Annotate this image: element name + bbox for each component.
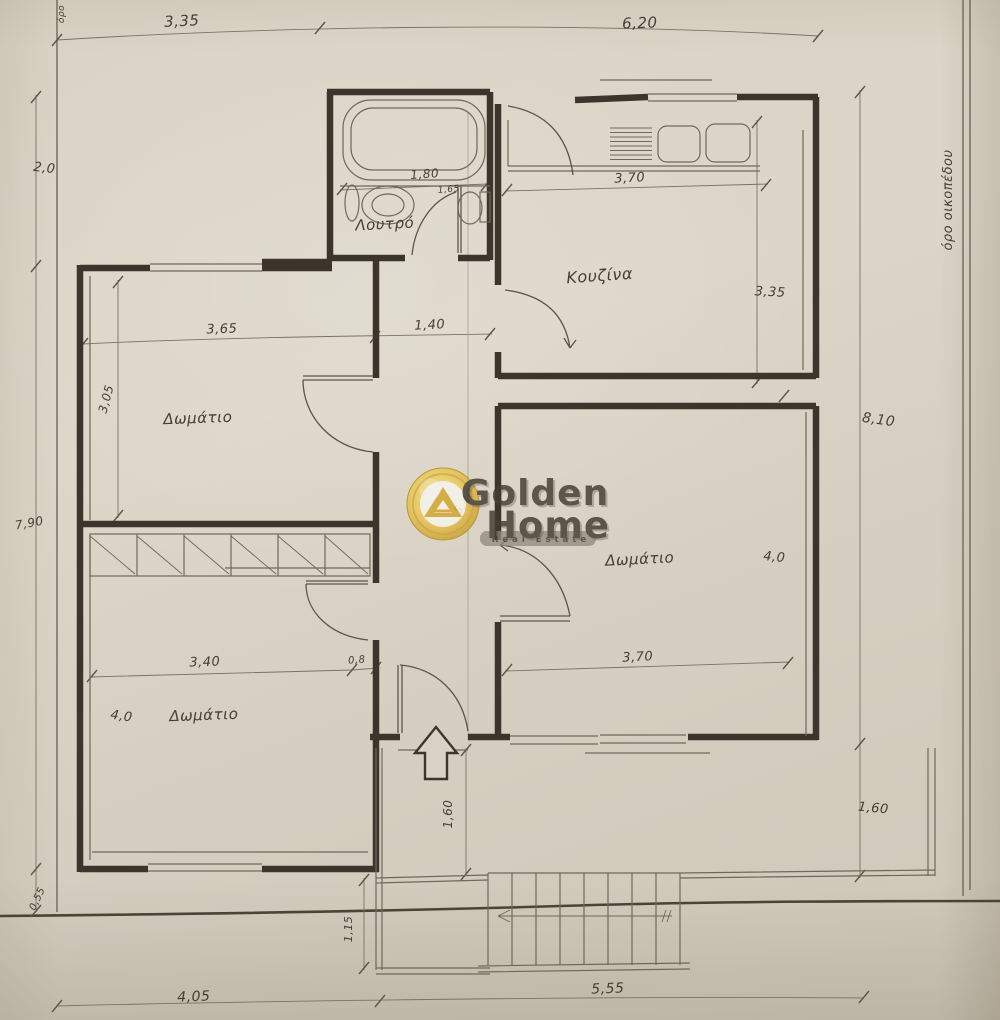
dim-line-bottomroom-width (90, 668, 378, 677)
dim-hall-width: 1,40 (414, 317, 446, 334)
kitchen-drainboard (610, 128, 652, 160)
washbasin-inner (372, 194, 404, 216)
stair-direction-line (498, 910, 672, 922)
dim-bath-door: 1,65 (437, 184, 460, 196)
terrace-edge (376, 748, 935, 883)
dim-bottom-right: 5,55 (591, 980, 625, 997)
closet-outline (90, 534, 370, 576)
dim-left-upper: 2,0 (33, 160, 57, 177)
dim-kitchen-width: 3,70 (614, 170, 646, 187)
dim-right-room-depth: 4,0 (763, 549, 786, 566)
room-label-left: Δωμάτιο (162, 408, 233, 428)
dim-left-main: 7,90 (14, 514, 45, 533)
stair-treads (488, 873, 680, 965)
dim-right-total: 8,10 (861, 410, 896, 430)
leftroom-door (303, 376, 373, 452)
logo-banner-text: Real Estate (492, 535, 590, 545)
stair-baseline (478, 963, 690, 972)
street-line (0, 901, 1000, 916)
closet (90, 534, 370, 576)
dim-bath-width: 1,80 (410, 166, 440, 182)
porch-edge (376, 748, 490, 974)
bathtub-inner (351, 108, 477, 170)
kitchen-back-door (508, 106, 573, 175)
dim-left-bottom: 0,55 (28, 886, 48, 913)
floorplan-drawing: 3,35 6,20 2,0 7,90 0,55 8,10 1,60 όρο οι… (0, 0, 1000, 1020)
room-label-right: Δωμάτιο (604, 548, 675, 570)
dim-kitchen-depth: 3,35 (754, 284, 786, 301)
doors (303, 106, 576, 733)
dim-top-right-wing: 6,20 (622, 13, 658, 32)
dim-left-room-depth: 3,05 (96, 383, 117, 414)
bottomroom-door (306, 581, 368, 640)
dim-line-leftroom-hall (83, 334, 492, 344)
entrance-arrow-icon (415, 727, 457, 779)
room-label-bathroom: Λουτρό (354, 213, 415, 234)
dim-line-bath-width (340, 184, 488, 190)
dim-right-terrace: 1,60 (857, 800, 889, 818)
east-wall-inner-faces (803, 130, 806, 736)
kitchen-door (505, 290, 576, 348)
kitchen-north-wall (575, 97, 818, 100)
dim-stair-depth: 1,15 (342, 916, 355, 943)
kitchen-sink-right (706, 124, 750, 162)
dim-bottom-room-depth: 4,0 (109, 708, 133, 726)
dim-bottom-room-width: 3,40 (189, 654, 220, 670)
dim-bottom-left: 4,05 (177, 988, 211, 1005)
bathroom-walls (262, 92, 490, 262)
boundary-right-label: όρο οικοπέδου (941, 149, 956, 250)
rightroom-door (500, 539, 570, 621)
bathroom-door (412, 186, 461, 255)
floorplan-photo: 3,35 6,20 2,0 7,90 0,55 8,10 1,60 όρο οι… (0, 0, 1000, 1020)
room-label-bottom: Δωμάτιο (168, 705, 239, 725)
kitchen-sink-left (658, 126, 700, 162)
logo-coin-highlight (419, 478, 441, 500)
dim-left-room-width: 3,65 (206, 321, 237, 337)
watermark-logo: Golden Golden Home Home Real Estate (407, 468, 612, 549)
boundary-top-left-label: όρο (56, 5, 67, 23)
room-label-kitchen: Κουζίνα (566, 264, 634, 288)
front-door (398, 665, 468, 733)
north-window (150, 264, 262, 271)
dim-top-left-wing: 3,35 (164, 11, 200, 31)
dim-porch-depth: 1,60 (441, 800, 455, 829)
dim-bottom-room-jog: 0,8 (348, 654, 366, 666)
dim-right-room-width: 3,70 (622, 649, 654, 666)
